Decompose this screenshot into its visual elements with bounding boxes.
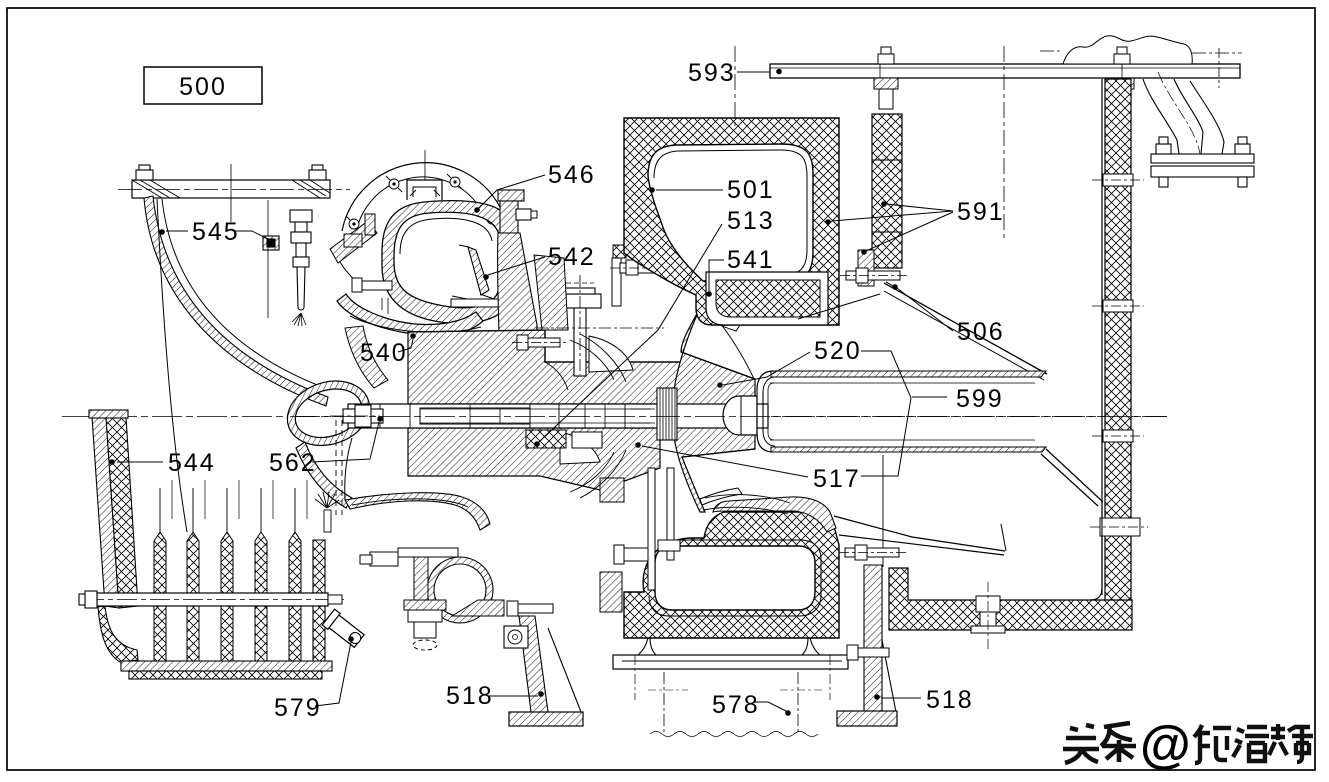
svg-text:518: 518 <box>926 686 974 714</box>
svg-text:545: 545 <box>192 218 240 246</box>
svg-text:578: 578 <box>712 691 760 719</box>
svg-text:@: @ <box>1140 716 1191 774</box>
svg-text:591: 591 <box>957 198 1005 226</box>
svg-text:542: 542 <box>548 243 596 271</box>
svg-text:517: 517 <box>813 465 861 493</box>
svg-text:544: 544 <box>168 449 216 477</box>
svg-text:599: 599 <box>956 385 1004 413</box>
svg-text:501: 501 <box>727 176 775 204</box>
svg-text:506: 506 <box>957 318 1005 346</box>
svg-text:500: 500 <box>179 73 227 101</box>
svg-text:562: 562 <box>269 449 317 477</box>
svg-text:518: 518 <box>446 682 494 710</box>
svg-text:579: 579 <box>274 694 322 722</box>
svg-text:546: 546 <box>548 161 596 189</box>
svg-text:520: 520 <box>814 337 862 365</box>
svg-text:513: 513 <box>727 207 775 235</box>
svg-text:593: 593 <box>688 59 736 87</box>
svg-text:540: 540 <box>360 339 408 367</box>
svg-text:541: 541 <box>727 246 775 274</box>
